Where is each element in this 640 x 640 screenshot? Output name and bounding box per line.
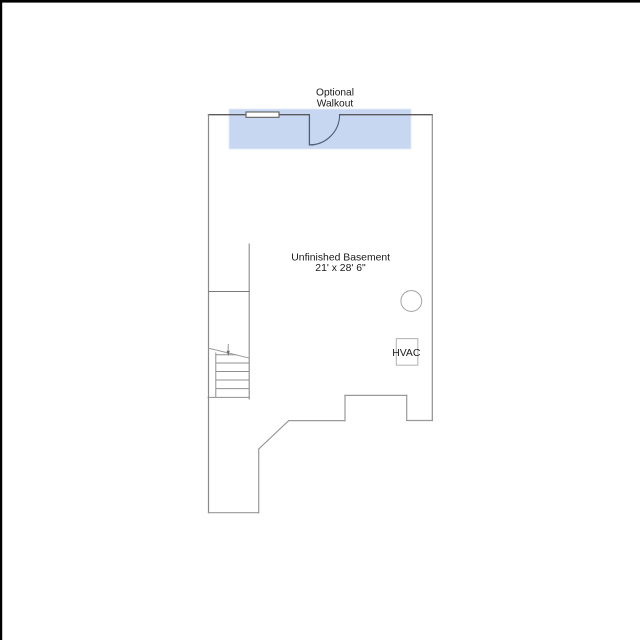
svg-text:21' x 28' 6": 21' x 28' 6" (315, 263, 366, 274)
svg-text:HVAC: HVAC (392, 348, 421, 359)
svg-text:Walkout: Walkout (317, 99, 354, 110)
svg-text:Optional: Optional (316, 88, 354, 99)
